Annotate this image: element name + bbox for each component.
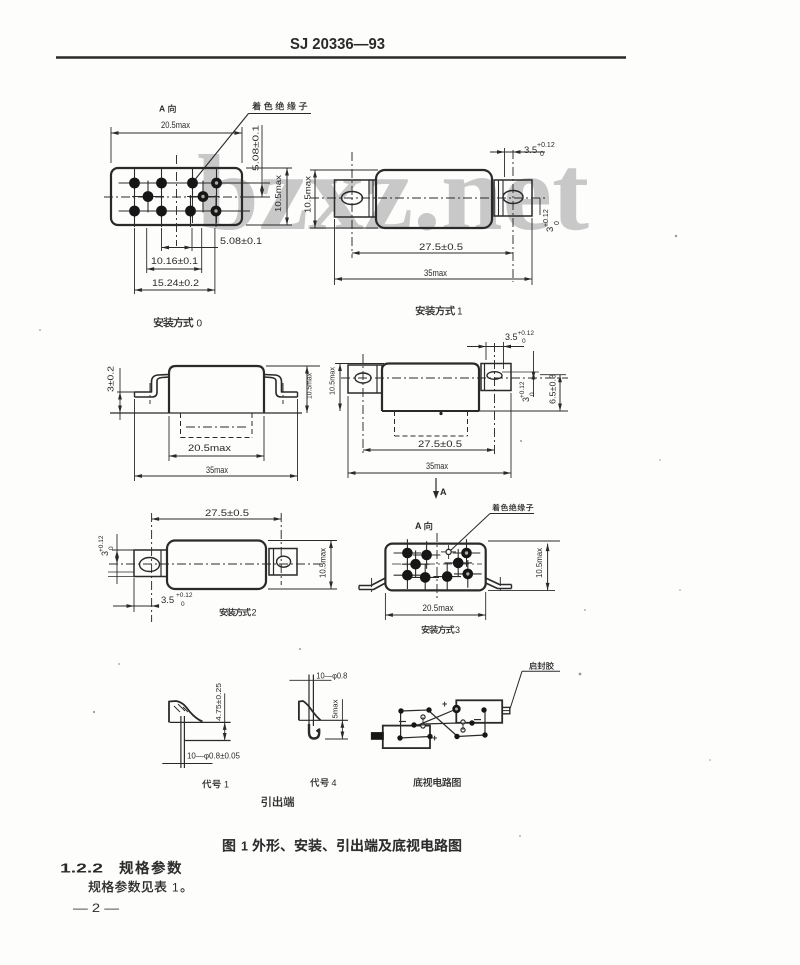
svg-text:3.5: 3.5	[505, 332, 518, 342]
svg-text:0: 0	[522, 338, 526, 345]
svg-text:A: A	[440, 487, 447, 497]
svg-text:A: A	[159, 104, 165, 114]
svg-text:0: 0	[540, 151, 544, 158]
svg-text:10.5max: 10.5max	[305, 373, 314, 399]
svg-text:35max: 35max	[426, 461, 448, 472]
svg-text:1: 1	[457, 307, 463, 318]
svg-text:3.5: 3.5	[524, 145, 537, 156]
svg-text:+0.12: +0.12	[518, 330, 535, 337]
svg-text:15.24±0.2: 15.24±0.2	[152, 278, 199, 289]
svg-text:1: 1	[172, 881, 179, 895]
svg-text:27.5±0.5: 27.5±0.5	[418, 439, 462, 450]
svg-text:27.5±0.5: 27.5±0.5	[205, 508, 249, 519]
svg-text:4: 4	[332, 778, 337, 788]
svg-text:0: 0	[197, 319, 203, 330]
svg-text:0: 0	[108, 546, 115, 550]
svg-text:10.16±0.1: 10.16±0.1	[151, 256, 198, 267]
svg-text:+: +	[432, 733, 437, 743]
svg-text:A: A	[415, 521, 422, 531]
svg-text:+0.12: +0.12	[98, 535, 105, 552]
svg-text:— 2 —: — 2 —	[73, 901, 119, 915]
svg-text:20.5max: 20.5max	[188, 443, 231, 454]
svg-text:SJ 20336—93: SJ 20336—93	[290, 36, 385, 53]
svg-text:0: 0	[181, 601, 185, 608]
svg-text:10.5max: 10.5max	[535, 548, 544, 578]
svg-text:10.5max: 10.5max	[304, 176, 313, 213]
svg-text:5.08±0.1: 5.08±0.1	[220, 236, 262, 247]
svg-text:4.75±0.25: 4.75±0.25	[214, 683, 223, 721]
svg-text:10.5max: 10.5max	[274, 175, 283, 212]
svg-text:0: 0	[554, 221, 561, 225]
svg-text:10—φ0.8±0.05: 10—φ0.8±0.05	[187, 752, 241, 761]
svg-text:3: 3	[455, 625, 460, 635]
svg-text:+0.12: +0.12	[519, 381, 526, 398]
svg-text:5.08±0.1: 5.08±0.1	[252, 124, 261, 171]
svg-text:27.5±0.5: 27.5±0.5	[419, 242, 463, 253]
svg-text:3.5: 3.5	[161, 595, 174, 606]
svg-text:10.5max: 10.5max	[319, 548, 328, 578]
svg-text:6.5±0.3: 6.5±0.3	[549, 373, 558, 404]
svg-text:1: 1	[241, 840, 248, 854]
svg-text:+0.12: +0.12	[537, 142, 555, 149]
svg-text:10.5max: 10.5max	[328, 367, 337, 395]
svg-text:+: +	[442, 699, 447, 709]
svg-text:35max: 35max	[424, 268, 447, 279]
svg-text:1: 1	[224, 780, 229, 790]
svg-text:5max: 5max	[331, 699, 340, 718]
svg-text:0: 0	[529, 392, 536, 396]
svg-text:1.2.2: 1.2.2	[60, 861, 103, 876]
svg-text:2: 2	[252, 608, 257, 618]
svg-text:35max: 35max	[206, 465, 228, 476]
svg-text:10—φ0.8: 10—φ0.8	[316, 672, 348, 681]
svg-text:20.5max: 20.5max	[161, 120, 190, 131]
svg-text:3±0.2: 3±0.2	[107, 365, 116, 392]
svg-text:+0.12: +0.12	[543, 209, 550, 227]
svg-text:+0.12: +0.12	[176, 592, 193, 599]
svg-text:20.5max: 20.5max	[423, 603, 454, 614]
